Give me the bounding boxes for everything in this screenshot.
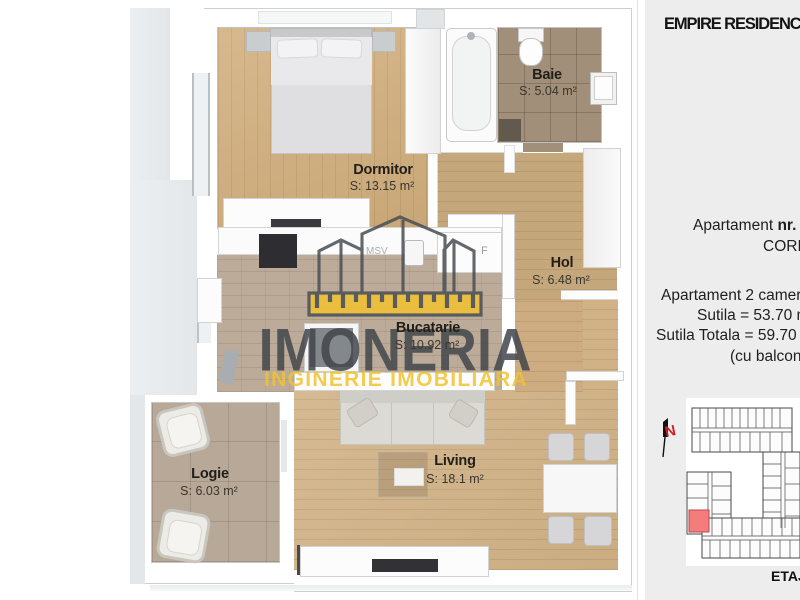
svg-text:N: N xyxy=(663,422,677,441)
